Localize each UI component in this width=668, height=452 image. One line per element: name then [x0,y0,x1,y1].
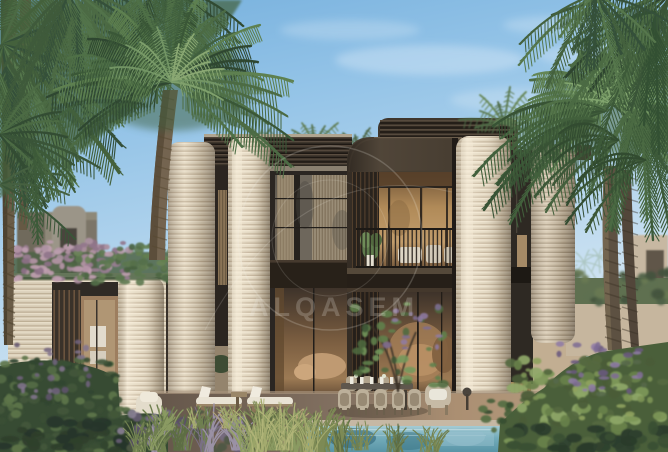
svg-text:ALQASEM: ALQASEM [249,292,419,322]
